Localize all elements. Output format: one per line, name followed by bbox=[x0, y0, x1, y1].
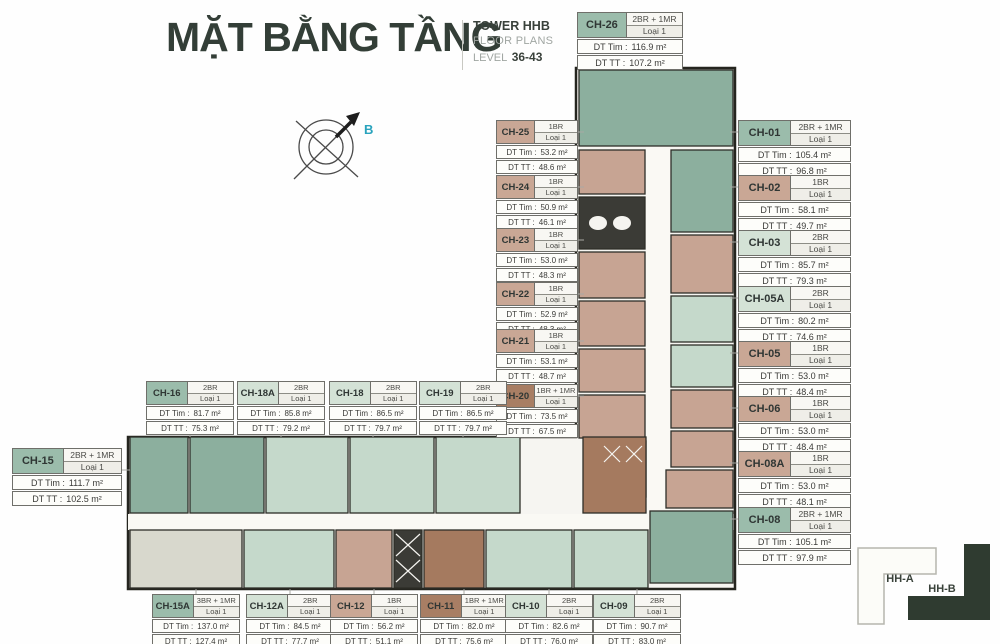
dt-tt-label: DT TT : bbox=[508, 372, 535, 381]
dt-tt-label: DT TT : bbox=[508, 427, 535, 436]
unit-id: CH-11 bbox=[421, 595, 462, 617]
compass-north-label: B bbox=[364, 122, 373, 137]
dt-tt-value: 77.7 m² bbox=[292, 637, 319, 644]
unit-bedroom-type: 1BR bbox=[791, 397, 850, 410]
unit-type-block: 2BRLoại 1 bbox=[547, 595, 592, 617]
unit-variant: Loại 1 bbox=[791, 355, 850, 367]
dt-tim-label: DT Tim : bbox=[343, 622, 373, 631]
unit-variant: Loại 1 bbox=[288, 607, 333, 618]
dt-tim-value: 53.0 m² bbox=[798, 481, 829, 491]
dt-tim-label: DT Tim : bbox=[506, 256, 536, 265]
unit-type-block: 1BRLoại 1 bbox=[535, 176, 577, 198]
dt-tt-value: 79.7 m² bbox=[375, 424, 402, 433]
dt-tt-value: 107.2 m² bbox=[629, 58, 665, 68]
plan-unit-ch-16 bbox=[190, 437, 264, 513]
unit-card-ch-09: CH-092BRLoại 1DT Tim :90.7 m²DT TT :83.0… bbox=[593, 594, 681, 644]
unit-card-header: CH-021BRLoại 1 bbox=[738, 175, 851, 201]
unit-variant: Loại 1 bbox=[791, 134, 850, 146]
dt-tim-value: 56.2 m² bbox=[377, 622, 404, 631]
unit-id: CH-22 bbox=[497, 283, 535, 305]
unit-bedroom-type: 1BR bbox=[535, 330, 577, 342]
unit-id: CH-08A bbox=[739, 452, 791, 476]
unit-dt-tim-row: DT Tim :52.9 m² bbox=[496, 307, 578, 321]
dt-tt-label: DT TT : bbox=[345, 637, 372, 644]
unit-variant: Loại 1 bbox=[372, 607, 417, 618]
unit-card-ch-25: CH-251BRLoại 1DT Tim :53.2 m²DT TT :48.6… bbox=[496, 120, 578, 174]
unit-card-ch-20: CH-201BR + 1MRLoại 1DT Tim :73.5 m²DT TT… bbox=[496, 384, 578, 438]
unit-card-header: CH-032BRLoại 1 bbox=[738, 230, 851, 256]
unit-variant: Loại 1 bbox=[791, 465, 850, 477]
unit-card-ch-10: CH-102BRLoại 1DT Tim :82.6 m²DT TT :76.0… bbox=[505, 594, 593, 644]
unit-id: CH-01 bbox=[739, 121, 791, 145]
unit-bedroom-type: 2BR + 1MR bbox=[627, 13, 682, 26]
unit-bedroom-type: 1BR bbox=[535, 121, 577, 133]
unit-id: CH-21 bbox=[497, 330, 535, 352]
unit-type-block: 1BRLoại 1 bbox=[535, 121, 577, 143]
unit-variant: Loại 1 bbox=[371, 394, 416, 405]
unit-dt-tim-row: DT Tim :53.2 m² bbox=[496, 145, 578, 159]
unit-dt-tim-row: DT Tim :137.0 m² bbox=[152, 619, 240, 633]
unit-id: CH-23 bbox=[497, 229, 535, 251]
unit-variant: Loại 1 bbox=[535, 295, 577, 306]
dt-tim-label: DT Tim : bbox=[760, 260, 794, 270]
unit-type-block: 2BR + 1MRLoại 1 bbox=[791, 508, 850, 532]
plan-core-elevator-lobby bbox=[579, 197, 645, 249]
unit-variant: Loại 1 bbox=[535, 241, 577, 252]
unit-bedroom-type: 2BR + 1MR bbox=[791, 121, 850, 134]
unit-dt-tim-row: DT Tim :116.9 m² bbox=[577, 39, 683, 54]
dt-tt-value: 51.1 m² bbox=[376, 637, 403, 644]
dt-tim-value: 53.2 m² bbox=[540, 148, 567, 157]
dt-tim-value: 82.0 m² bbox=[467, 622, 494, 631]
unit-card-header: CH-102BRLoại 1 bbox=[505, 594, 593, 618]
unit-dt-tt-row: DT TT :97.9 m² bbox=[738, 550, 851, 565]
dt-tim-label: DT Tim : bbox=[758, 150, 792, 160]
unit-dt-tim-row: DT Tim :82.6 m² bbox=[505, 619, 593, 633]
unit-variant: Loại 1 bbox=[635, 607, 680, 618]
unit-dt-tt-row: DT TT :83.0 m² bbox=[593, 634, 681, 644]
unit-card-header: CH-12A2BRLoại 1 bbox=[246, 594, 334, 618]
dt-tt-label: DT TT : bbox=[520, 637, 547, 644]
unit-dt-tt-row: DT TT :76.0 m² bbox=[505, 634, 593, 644]
unit-card-ch-23: CH-231BRLoại 1DT Tim :53.0 m²DT TT :48.3… bbox=[496, 228, 578, 282]
unit-bedroom-type: 1BR + 1MR bbox=[462, 595, 507, 607]
unit-type-block: 1BRLoại 1 bbox=[791, 342, 850, 366]
dt-tim-value: 111.7 m² bbox=[69, 478, 103, 488]
plan-unit-ch-23 bbox=[579, 301, 645, 346]
unit-card-ch-12a: CH-12A2BRLoại 1DT Tim :84.5 m²DT TT :77.… bbox=[246, 594, 334, 644]
unit-id: CH-12A bbox=[247, 595, 288, 617]
unit-id: CH-02 bbox=[739, 176, 791, 200]
unit-card-header: CH-241BRLoại 1 bbox=[496, 175, 578, 199]
dt-tt-label: DT TT : bbox=[344, 424, 371, 433]
dt-tt-label: DT TT : bbox=[508, 218, 535, 227]
page-title: MẶT BẰNG TẦNG bbox=[166, 14, 501, 61]
unit-type-block: 2BR + 1MRLoại 1 bbox=[627, 13, 682, 37]
unit-id: CH-25 bbox=[497, 121, 535, 143]
unit-card-ch-26: CH-262BR + 1MRLoại 1DT Tim :116.9 m²DT T… bbox=[577, 12, 683, 70]
unit-type-block: 2BRLoại 1 bbox=[371, 382, 416, 404]
unit-bedroom-type: 2BR bbox=[288, 595, 333, 607]
dt-tt-label: DT TT : bbox=[762, 276, 792, 286]
unit-card-ch-01: CH-012BR + 1MRLoại 1DT Tim :105.4 m²DT T… bbox=[738, 120, 851, 178]
unit-dt-tt-row: DT TT :77.7 m² bbox=[246, 634, 334, 644]
tower-subtitle: FLOOR PLANS bbox=[473, 34, 553, 49]
dt-tt-value: 48.4 m² bbox=[796, 387, 827, 397]
unit-dt-tt-row: DT TT :48.6 m² bbox=[496, 160, 578, 174]
dt-tt-value: 75.6 m² bbox=[466, 637, 493, 644]
unit-type-block: 1BRLoại 1 bbox=[372, 595, 417, 617]
plan-unit-ch-06 bbox=[671, 431, 733, 467]
dt-tim-label: DT Tim : bbox=[506, 357, 536, 366]
unit-variant: Loại 1 bbox=[188, 394, 233, 405]
unit-bedroom-type: 1BR bbox=[535, 176, 577, 188]
unit-card-ch-05: CH-051BRLoại 1DT Tim :53.0 m²DT TT :48.4… bbox=[738, 341, 851, 399]
unit-variant: Loại 1 bbox=[535, 188, 577, 199]
unit-bedroom-type: 1BR + 1MR bbox=[535, 385, 577, 397]
unit-variant: Loại 1 bbox=[535, 342, 577, 353]
unit-card-ch-21: CH-211BRLoại 1DT Tim :53.1 m²DT TT :48.7… bbox=[496, 329, 578, 383]
tower-info: TOWER HHB FLOOR PLANS LEVEL 36-43 bbox=[473, 19, 553, 66]
unit-bedroom-type: 1BR bbox=[372, 595, 417, 607]
dt-tim-value: 105.1 m² bbox=[796, 537, 832, 547]
level-value: 36-43 bbox=[512, 50, 543, 64]
dt-tim-label: DT Tim : bbox=[760, 205, 794, 215]
dt-tt-label: DT TT : bbox=[508, 271, 535, 280]
dt-tim-label: DT Tim : bbox=[594, 42, 628, 52]
unit-card-header: CH-05A2BRLoại 1 bbox=[738, 286, 851, 312]
unit-id: CH-19 bbox=[420, 382, 461, 404]
dt-tim-value: 52.9 m² bbox=[540, 310, 567, 319]
plan-unit-ch-15a bbox=[130, 530, 242, 588]
dt-tim-label: DT Tim : bbox=[506, 203, 536, 212]
unit-card-header: CH-111BR + 1MRLoại 1 bbox=[420, 594, 508, 618]
unit-type-block: 2BR + 1MRLoại 1 bbox=[64, 449, 121, 473]
unit-card-header: CH-08A1BRLoại 1 bbox=[738, 451, 851, 477]
dt-tt-value: 79.7 m² bbox=[465, 424, 492, 433]
dt-tim-label: DT Tim : bbox=[31, 478, 65, 488]
unit-card-ch-18: CH-182BRLoại 1DT Tim :86.5 m²DT TT :79.7… bbox=[329, 381, 417, 435]
plan-unit-ch-11 bbox=[424, 530, 484, 588]
unit-dt-tt-row: DT TT :107.2 m² bbox=[577, 55, 683, 70]
dt-tim-label: DT Tim : bbox=[760, 371, 794, 381]
dt-tt-value: 75.3 m² bbox=[192, 424, 219, 433]
unit-dt-tim-row: DT Tim :81.7 m² bbox=[146, 406, 234, 420]
dt-tim-label: DT Tim : bbox=[760, 481, 794, 491]
unit-type-block: 1BRLoại 1 bbox=[791, 397, 850, 421]
dt-tt-label: DT TT : bbox=[165, 637, 192, 644]
unit-dt-tim-row: DT Tim :53.0 m² bbox=[738, 368, 851, 383]
unit-type-block: 1BR + 1MRLoại 1 bbox=[535, 385, 577, 407]
unit-id: CH-18A bbox=[238, 382, 279, 404]
dt-tim-value: 82.6 m² bbox=[552, 622, 579, 631]
unit-card-ch-15: CH-152BR + 1MRLoại 1DT Tim :111.7 m²DT T… bbox=[12, 448, 122, 506]
dt-tt-value: 67.5 m² bbox=[539, 427, 566, 436]
dt-tt-value: 48.6 m² bbox=[539, 163, 566, 172]
unit-card-ch-05a: CH-05A2BRLoại 1DT Tim :80.2 m²DT TT :74.… bbox=[738, 286, 851, 344]
unit-card-ch-11: CH-111BR + 1MRLoại 1DT Tim :82.0 m²DT TT… bbox=[420, 594, 508, 644]
unit-id: CH-18 bbox=[330, 382, 371, 404]
unit-dt-tt-row: DT TT :48.7 m² bbox=[496, 369, 578, 383]
plan-unit-ch-01 bbox=[671, 150, 733, 232]
unit-id: CH-15 bbox=[13, 449, 64, 473]
unit-dt-tt-row: DT TT :127.4 m² bbox=[152, 634, 240, 644]
unit-card-ch-19: CH-192BRLoại 1DT Tim :86.5 m²DT TT :79.7… bbox=[419, 381, 507, 435]
dt-tt-value: 48.4 m² bbox=[796, 442, 827, 452]
unit-dt-tim-row: DT Tim :85.8 m² bbox=[237, 406, 325, 420]
dt-tt-label: DT TT : bbox=[762, 332, 792, 342]
dt-tim-label: DT Tim : bbox=[159, 409, 189, 418]
unit-card-ch-22: CH-221BRLoại 1DT Tim :52.9 m²DT TT :48.3… bbox=[496, 282, 578, 336]
unit-dt-tim-row: DT Tim :53.0 m² bbox=[738, 423, 851, 438]
dt-tt-label: DT TT : bbox=[435, 637, 462, 644]
unit-id: CH-16 bbox=[147, 382, 188, 404]
unit-bedroom-type: 1BR bbox=[791, 342, 850, 355]
plan-unit-ch-12 bbox=[336, 530, 392, 588]
unit-type-block: 2BRLoại 1 bbox=[279, 382, 324, 404]
unit-variant: Loại 1 bbox=[791, 300, 850, 312]
dt-tt-label: DT TT : bbox=[434, 424, 461, 433]
plan-unit-ch-20 bbox=[583, 437, 646, 513]
unit-bedroom-type: 2BR bbox=[371, 382, 416, 394]
plan-unit-ch-15 bbox=[130, 437, 188, 513]
plan-unit-ch-02 bbox=[671, 235, 733, 293]
dt-tim-value: 58.1 m² bbox=[798, 205, 829, 215]
unit-id: CH-10 bbox=[506, 595, 547, 617]
plan-unit-ch-09 bbox=[574, 530, 648, 588]
unit-variant: Loại 1 bbox=[535, 397, 577, 408]
unit-id: CH-12 bbox=[331, 595, 372, 617]
unit-id: CH-06 bbox=[739, 397, 791, 421]
dt-tim-label: DT Tim : bbox=[506, 310, 536, 319]
unit-bedroom-type: 1BR bbox=[535, 229, 577, 241]
plan-unit-ch-12a bbox=[244, 530, 334, 588]
dt-tt-value: 102.5 m² bbox=[66, 494, 102, 504]
unit-type-block: 1BRLoại 1 bbox=[791, 452, 850, 476]
floor-plan-page: B HH-A HH-B MẶT BẰNG TẦNG TOWER HHB FLOO… bbox=[0, 0, 1000, 644]
unit-dt-tim-row: DT Tim :73.5 m² bbox=[496, 409, 578, 423]
unit-type-block: 2BRLoại 1 bbox=[461, 382, 506, 404]
unit-variant: Loại 1 bbox=[791, 410, 850, 422]
unit-dt-tim-row: DT Tim :90.7 m² bbox=[593, 619, 681, 633]
dt-tt-label: DT TT : bbox=[762, 553, 792, 563]
dt-tim-value: 84.5 m² bbox=[293, 622, 320, 631]
unit-dt-tt-row: DT TT :79.7 m² bbox=[329, 421, 417, 435]
unit-type-block: 2BRLoại 1 bbox=[188, 382, 233, 404]
unit-variant: Loại 1 bbox=[547, 607, 592, 618]
dt-tim-value: 85.7 m² bbox=[798, 260, 829, 270]
unit-card-ch-08a: CH-08A1BRLoại 1DT Tim :53.0 m²DT TT :48.… bbox=[738, 451, 851, 509]
plan-unit-ch-26 bbox=[579, 70, 733, 146]
unit-card-header: CH-182BRLoại 1 bbox=[329, 381, 417, 405]
unit-variant: Loại 1 bbox=[535, 133, 577, 144]
plan-unit-ch-10 bbox=[486, 530, 572, 588]
tower-level: LEVEL 36-43 bbox=[473, 49, 553, 66]
unit-dt-tim-row: DT Tim :85.7 m² bbox=[738, 257, 851, 272]
unit-bedroom-type: 2BR bbox=[791, 287, 850, 300]
plan-unit-ch-19 bbox=[436, 437, 520, 513]
unit-dt-tt-row: DT TT :75.3 m² bbox=[146, 421, 234, 435]
dt-tim-value: 105.4 m² bbox=[796, 150, 832, 160]
plan-unit-ch-08 bbox=[650, 511, 733, 583]
dt-tim-value: 73.5 m² bbox=[540, 412, 567, 421]
plan-unit-ch-22 bbox=[579, 349, 645, 392]
unit-card-header: CH-201BR + 1MRLoại 1 bbox=[496, 384, 578, 408]
unit-card-ch-02: CH-021BRLoại 1DT Tim :58.1 m²DT TT :49.7… bbox=[738, 175, 851, 233]
unit-variant: Loại 1 bbox=[791, 189, 850, 201]
unit-dt-tim-row: DT Tim :53.0 m² bbox=[496, 253, 578, 267]
dt-tim-label: DT Tim : bbox=[432, 409, 462, 418]
dt-tt-label: DT TT : bbox=[762, 387, 792, 397]
unit-variant: Loại 1 bbox=[194, 607, 239, 618]
unit-variant: Loại 1 bbox=[791, 521, 850, 533]
plan-unit-ch-08a bbox=[666, 470, 733, 508]
corridor-horizontal bbox=[128, 514, 734, 530]
unit-card-header: CH-192BRLoại 1 bbox=[419, 381, 507, 405]
keyplan-label-hha: HH-A bbox=[886, 573, 914, 585]
unit-card-header: CH-121BRLoại 1 bbox=[330, 594, 418, 618]
unit-dt-tt-row: DT TT :67.5 m² bbox=[496, 424, 578, 438]
unit-dt-tim-row: DT Tim :50.9 m² bbox=[496, 200, 578, 214]
unit-dt-tt-row: DT TT :79.7 m² bbox=[419, 421, 507, 435]
dt-tim-label: DT Tim : bbox=[259, 622, 289, 631]
dt-tim-label: DT Tim : bbox=[606, 622, 636, 631]
plan-unit-ch-18a bbox=[266, 437, 348, 513]
unit-id: CH-26 bbox=[578, 13, 627, 37]
dt-tt-value: 48.7 m² bbox=[539, 372, 566, 381]
dt-tim-value: 86.5 m² bbox=[376, 409, 403, 418]
unit-card-ch-08: CH-082BR + 1MRLoại 1DT Tim :105.1 m²DT T… bbox=[738, 507, 851, 565]
unit-dt-tt-row: DT TT :75.6 m² bbox=[420, 634, 508, 644]
dt-tt-value: 49.7 m² bbox=[796, 221, 827, 231]
unit-dt-tim-row: DT Tim :111.7 m² bbox=[12, 475, 122, 490]
unit-dt-tim-row: DT Tim :82.0 m² bbox=[420, 619, 508, 633]
dt-tt-label: DT TT : bbox=[252, 424, 279, 433]
plan-unit-ch-18 bbox=[350, 437, 434, 513]
dt-tt-value: 83.0 m² bbox=[639, 637, 666, 644]
dt-tt-value: 96.8 m² bbox=[796, 166, 827, 176]
unit-card-header: CH-251BRLoại 1 bbox=[496, 120, 578, 144]
dt-tim-value: 53.1 m² bbox=[540, 357, 567, 366]
unit-dt-tim-row: DT Tim :105.4 m² bbox=[738, 147, 851, 162]
unit-dt-tim-row: DT Tim :86.5 m² bbox=[419, 406, 507, 420]
unit-bedroom-type: 1BR bbox=[791, 452, 850, 465]
header-divider bbox=[462, 20, 463, 70]
unit-card-header: CH-211BRLoại 1 bbox=[496, 329, 578, 353]
unit-card-header: CH-162BRLoại 1 bbox=[146, 381, 234, 405]
level-label: LEVEL bbox=[473, 52, 507, 64]
unit-card-ch-16: CH-162BRLoại 1DT Tim :81.7 m²DT TT :75.3… bbox=[146, 381, 234, 435]
dt-tt-label: DT TT : bbox=[762, 221, 792, 231]
unit-variant: Loại 1 bbox=[64, 462, 121, 474]
unit-dt-tt-row: DT TT :102.5 m² bbox=[12, 491, 122, 506]
unit-dt-tim-row: DT Tim :84.5 m² bbox=[246, 619, 334, 633]
unit-type-block: 1BRLoại 1 bbox=[535, 330, 577, 352]
dt-tim-value: 137.0 m² bbox=[197, 622, 229, 631]
dt-tim-value: 86.5 m² bbox=[466, 409, 493, 418]
unit-type-block: 1BR + 1MRLoại 1 bbox=[462, 595, 507, 617]
dt-tt-label: DT TT : bbox=[608, 637, 635, 644]
tower-name: TOWER HHB bbox=[473, 19, 553, 34]
unit-card-header: CH-15A3BR + 1MRLoại 1 bbox=[152, 594, 240, 618]
dt-tim-value: 81.7 m² bbox=[193, 409, 220, 418]
dt-tim-value: 53.0 m² bbox=[798, 371, 829, 381]
unit-bedroom-type: 1BR bbox=[791, 176, 850, 189]
unit-card-header: CH-231BRLoại 1 bbox=[496, 228, 578, 252]
dt-tt-value: 76.0 m² bbox=[551, 637, 578, 644]
unit-card-ch-06: CH-061BRLoại 1DT Tim :53.0 m²DT TT :48.4… bbox=[738, 396, 851, 454]
unit-id: CH-03 bbox=[739, 231, 791, 255]
unit-type-block: 2BR + 1MRLoại 1 bbox=[791, 121, 850, 145]
unit-variant: Loại 1 bbox=[279, 394, 324, 405]
unit-id: CH-05 bbox=[739, 342, 791, 366]
dt-tim-label: DT Tim : bbox=[163, 622, 193, 631]
unit-card-header: CH-082BR + 1MRLoại 1 bbox=[738, 507, 851, 533]
plan-unit-ch-21 bbox=[579, 395, 645, 438]
unit-variant: Loại 1 bbox=[791, 244, 850, 256]
unit-card-ch-03: CH-032BRLoại 1DT Tim :85.7 m²DT TT :79.3… bbox=[738, 230, 851, 288]
dt-tt-value: 79.3 m² bbox=[796, 276, 827, 286]
unit-dt-tt-row: DT TT :48.3 m² bbox=[496, 268, 578, 282]
unit-bedroom-type: 2BR + 1MR bbox=[64, 449, 121, 462]
unit-type-block: 1BRLoại 1 bbox=[791, 176, 850, 200]
unit-dt-tt-row: DT TT :51.1 m² bbox=[330, 634, 418, 644]
unit-card-ch-12: CH-121BRLoại 1DT Tim :56.2 m²DT TT :51.1… bbox=[330, 594, 418, 644]
dt-tim-value: 85.8 m² bbox=[284, 409, 311, 418]
dt-tt-label: DT TT : bbox=[161, 424, 188, 433]
unit-dt-tim-row: DT Tim :56.2 m² bbox=[330, 619, 418, 633]
dt-tim-label: DT Tim : bbox=[506, 148, 536, 157]
unit-type-block: 2BRLoại 1 bbox=[791, 231, 850, 255]
unit-type-block: 2BRLoại 1 bbox=[791, 287, 850, 311]
unit-card-ch-18a: CH-18A2BRLoại 1DT Tim :85.8 m²DT TT :79.… bbox=[237, 381, 325, 435]
unit-bedroom-type: 2BR bbox=[547, 595, 592, 607]
plan-unit-ch-03 bbox=[671, 296, 733, 342]
unit-variant: Loại 1 bbox=[462, 607, 507, 618]
dt-tim-value: 80.2 m² bbox=[798, 316, 829, 326]
unit-bedroom-type: 1BR bbox=[535, 283, 577, 295]
unit-card-header: CH-18A2BRLoại 1 bbox=[237, 381, 325, 405]
unit-id: CH-05A bbox=[739, 287, 791, 311]
dt-tim-label: DT Tim : bbox=[342, 409, 372, 418]
unit-id: CH-09 bbox=[594, 595, 635, 617]
dt-tt-label: DT TT : bbox=[762, 442, 792, 452]
plan-unit-ch-25 bbox=[579, 150, 645, 194]
unit-type-block: 2BRLoại 1 bbox=[288, 595, 333, 617]
plan-unit-ch-05a bbox=[671, 345, 733, 387]
unit-card-header: CH-051BRLoại 1 bbox=[738, 341, 851, 367]
unit-variant: Loại 1 bbox=[627, 26, 682, 38]
dt-tt-value: 74.6 m² bbox=[796, 332, 827, 342]
unit-id: CH-24 bbox=[497, 176, 535, 198]
unit-card-ch-24: CH-241BRLoại 1DT Tim :50.9 m²DT TT :46.1… bbox=[496, 175, 578, 229]
dt-tim-label: DT Tim : bbox=[760, 426, 794, 436]
dt-tim-label: DT Tim : bbox=[433, 622, 463, 631]
unit-dt-tim-row: DT Tim :86.5 m² bbox=[329, 406, 417, 420]
dt-tt-value: 48.3 m² bbox=[539, 271, 566, 280]
unit-bedroom-type: 3BR + 1MR bbox=[194, 595, 239, 607]
unit-card-header: CH-061BRLoại 1 bbox=[738, 396, 851, 422]
unit-dt-tim-row: DT Tim :80.2 m² bbox=[738, 313, 851, 328]
unit-dt-tim-row: DT Tim :58.1 m² bbox=[738, 202, 851, 217]
unit-bedroom-type: 2BR bbox=[279, 382, 324, 394]
unit-dt-tt-row: DT TT :79.2 m² bbox=[237, 421, 325, 435]
dt-tt-value: 46.1 m² bbox=[539, 218, 566, 227]
plan-unit-ch-24 bbox=[579, 252, 645, 298]
dt-tt-value: 79.2 m² bbox=[283, 424, 310, 433]
north-arrow bbox=[336, 122, 351, 137]
dt-tt-label: DT TT : bbox=[762, 166, 792, 176]
